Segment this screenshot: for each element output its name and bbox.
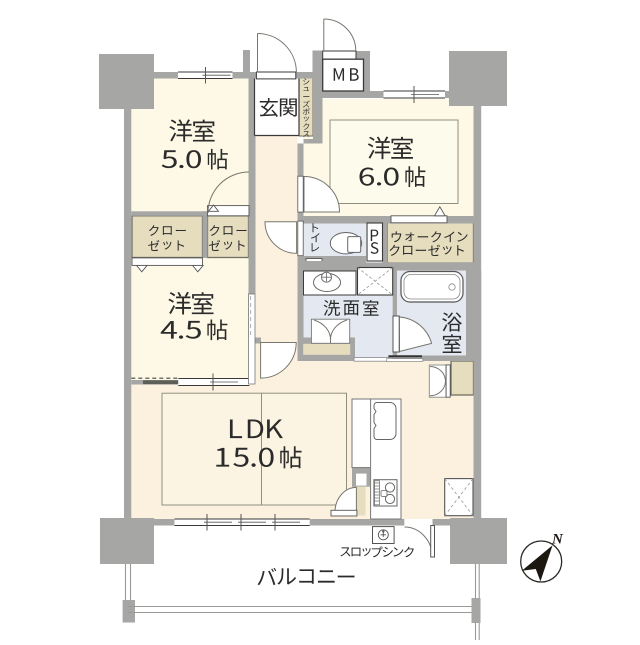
svg-text:N: N: [551, 532, 564, 548]
